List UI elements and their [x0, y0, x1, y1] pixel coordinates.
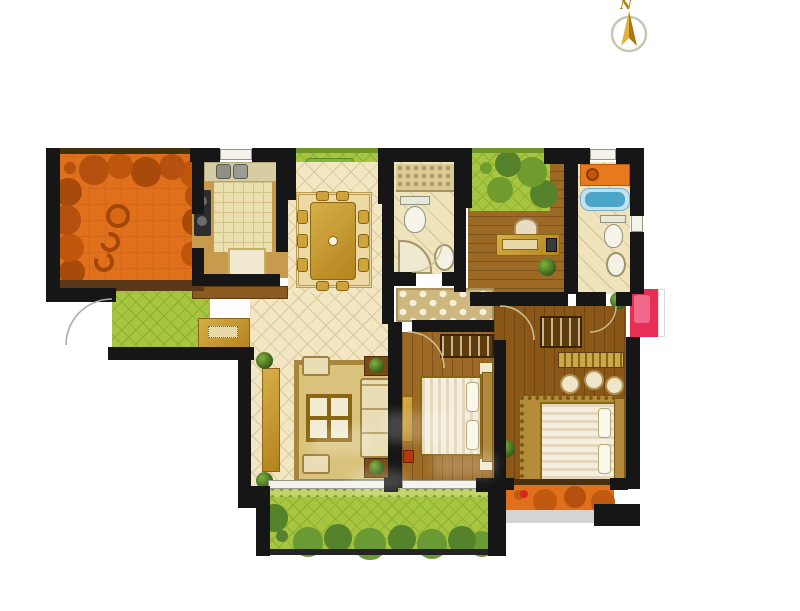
master-south-sill — [504, 479, 612, 485]
compass-icon — [602, 0, 658, 58]
stove-burner — [197, 216, 207, 226]
entry-table-items — [208, 326, 238, 338]
wall-segment — [412, 320, 494, 332]
coffee-table-pane — [331, 398, 348, 416]
headboard — [614, 398, 625, 486]
coffee-table-pane — [310, 398, 327, 416]
pillow — [466, 382, 479, 412]
bedroom-south-window — [402, 480, 478, 489]
toilet — [400, 196, 430, 205]
stool — [403, 450, 414, 463]
wall-segment — [276, 162, 288, 252]
dining-chair — [358, 210, 369, 224]
study-balcony-trees — [480, 162, 492, 174]
wall-segment — [630, 232, 644, 294]
wall-segment — [500, 478, 514, 490]
headboard — [482, 372, 493, 462]
shower-area — [396, 164, 454, 192]
balcony-bottom-rail — [256, 549, 506, 555]
pillow — [598, 444, 611, 474]
plant — [538, 258, 556, 276]
wall-segment — [46, 288, 116, 302]
dining-chair — [336, 281, 349, 291]
ac-niche-highlight — [634, 295, 650, 323]
armchair — [302, 454, 330, 474]
wardrobe — [440, 334, 494, 358]
entry-cabinet — [192, 286, 288, 299]
pedestal-sink — [606, 252, 626, 277]
pouf-chair — [605, 376, 624, 395]
kitchen-window — [220, 149, 252, 160]
balcony-bushes — [276, 530, 288, 542]
terrace-table — [106, 204, 130, 228]
wall-segment — [470, 292, 568, 306]
entry-door-arc — [66, 299, 112, 345]
dining-plate — [328, 236, 338, 246]
pouf-chair — [584, 370, 604, 390]
wall-segment — [576, 292, 606, 306]
side-window — [631, 214, 643, 232]
toilet — [404, 206, 426, 233]
plant — [256, 352, 273, 369]
kitchen-sink — [233, 164, 248, 179]
terrace-foliage — [64, 162, 76, 174]
counter-sink — [586, 168, 599, 181]
balcony-shadow — [506, 510, 594, 523]
pillow — [598, 408, 611, 438]
pouf-chair — [560, 374, 580, 394]
plant — [369, 358, 384, 373]
wall-segment — [564, 162, 578, 294]
wall-segment — [108, 347, 254, 360]
wall-segment — [388, 322, 402, 488]
pedestal-sink — [434, 244, 455, 271]
desk-panel — [502, 239, 538, 250]
terrace-floor — [58, 154, 204, 284]
wall-segment — [630, 148, 644, 216]
wall-segment — [192, 248, 204, 286]
wall-segment — [192, 162, 204, 214]
kitchen-cabinet — [228, 248, 266, 276]
wall-segment — [382, 162, 394, 324]
dining-chair — [297, 234, 308, 248]
dining-chair — [316, 191, 329, 201]
terrace-top-rail — [50, 148, 192, 154]
wall-segment — [190, 148, 220, 162]
toilet — [600, 215, 626, 223]
dining-chair — [297, 210, 308, 224]
tv-cabinet — [262, 368, 280, 472]
wall-segment — [442, 272, 456, 286]
kitchen-tiles — [214, 182, 272, 252]
wall-segment — [488, 486, 506, 556]
wall-segment — [610, 478, 628, 490]
balcony-rail — [468, 148, 548, 153]
wall-segment — [256, 486, 270, 556]
wall-segment — [626, 337, 640, 489]
dining-chair — [358, 258, 369, 272]
wall-segment — [192, 274, 280, 286]
dining-chair — [297, 258, 308, 272]
wall-segment — [476, 478, 496, 492]
storage-bench — [558, 352, 624, 368]
study-balcony-floor — [470, 153, 550, 211]
bath-window — [590, 149, 616, 160]
floor-plan: N — [0, 0, 800, 611]
pillow — [466, 420, 479, 450]
wall-segment — [616, 292, 632, 306]
ac-niche-edge — [658, 289, 665, 337]
dining-chair — [316, 281, 329, 291]
dining-chair — [358, 234, 369, 248]
wall-segment — [594, 504, 640, 526]
computer-monitor — [546, 238, 557, 252]
wall-segment — [394, 148, 456, 162]
balcony-rail — [288, 148, 380, 153]
wall-segment — [238, 357, 251, 507]
kitchen-sink — [216, 164, 231, 179]
wall-segment — [46, 148, 60, 302]
toilet — [604, 224, 623, 248]
wall-segment — [394, 272, 416, 286]
armchair — [302, 356, 330, 376]
flower — [520, 490, 528, 498]
dining-chair — [336, 191, 349, 201]
master-wardrobe — [540, 316, 582, 348]
bathtub-water — [585, 192, 625, 207]
compass: N — [602, 0, 658, 58]
